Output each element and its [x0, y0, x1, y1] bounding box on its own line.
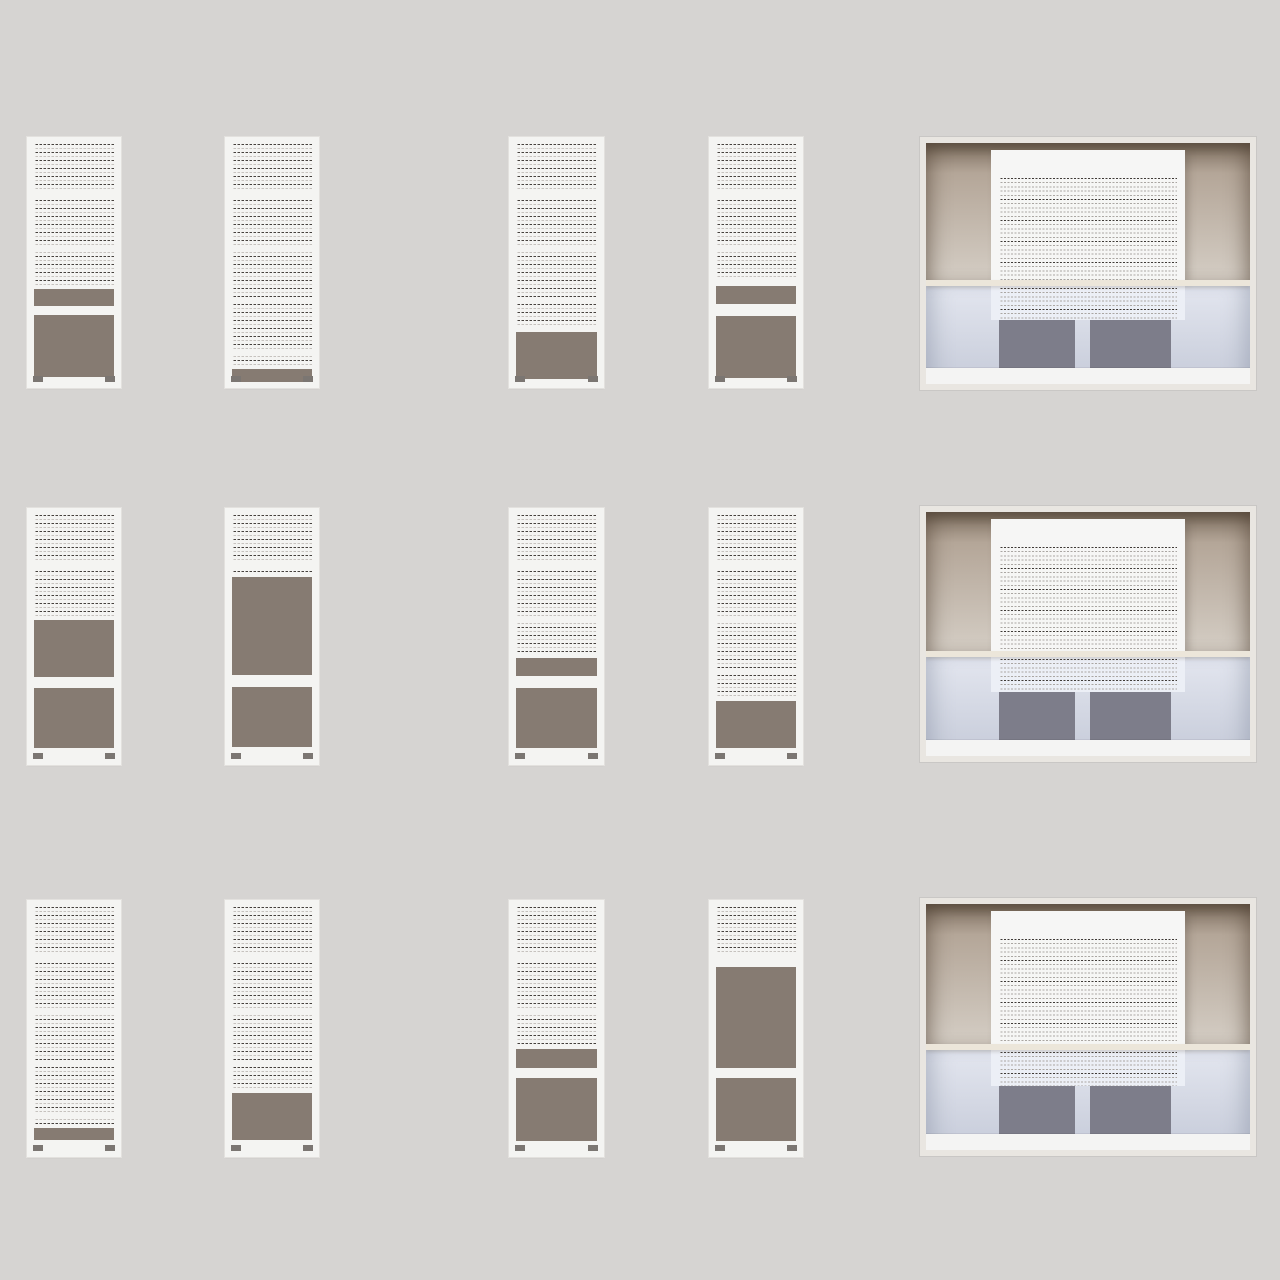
window-sill — [926, 368, 1250, 384]
image-bar — [516, 1049, 597, 1068]
footer-mark-left — [231, 753, 241, 759]
text-lines — [716, 144, 796, 280]
document-content — [232, 144, 312, 388]
document-content — [34, 515, 114, 765]
sheet-text-lines-tinted — [999, 659, 1177, 692]
text-lines — [716, 515, 796, 698]
window-sill — [926, 740, 1250, 756]
image-placeholder — [232, 687, 312, 747]
footer-mark-left — [715, 1145, 725, 1151]
image-placeholder — [716, 316, 796, 378]
image-placeholder — [516, 688, 597, 748]
document-content — [516, 515, 597, 765]
footer-mark-right — [588, 376, 598, 382]
poster-sheet-lower — [991, 657, 1185, 692]
sheet-text-lines — [999, 178, 1177, 280]
document-content — [716, 144, 796, 388]
sheet-text-lines-tinted — [999, 1052, 1177, 1086]
sheet-text-lines — [999, 547, 1177, 651]
footer-mark-right — [787, 376, 797, 382]
image-placeholder — [716, 1078, 796, 1141]
poster-sheet-lower — [991, 286, 1185, 320]
poster-left — [999, 692, 1075, 740]
storefront-interior — [926, 143, 1250, 384]
document-card-r1c1 — [27, 137, 121, 388]
footer-mark-left — [515, 1145, 525, 1151]
shelf-ledge — [926, 1044, 1250, 1050]
storefront-interior — [926, 904, 1250, 1150]
poster-right — [1090, 692, 1171, 740]
footer-mark-right — [588, 1145, 598, 1151]
document-content — [232, 907, 312, 1157]
text-lines — [716, 907, 796, 962]
poster-sheet-upper — [991, 150, 1185, 280]
image-placeholder — [232, 577, 312, 675]
footer-mark-right — [303, 753, 313, 759]
image-bar — [716, 286, 796, 304]
shelf-ledge — [926, 280, 1250, 286]
document-content — [34, 907, 114, 1157]
document-card-r2c1 — [27, 508, 121, 765]
text-lines — [232, 515, 312, 573]
storefront-card-r2 — [920, 506, 1256, 762]
image-placeholder — [232, 1093, 312, 1140]
footer-mark-right — [303, 376, 313, 382]
footer-mark-right — [588, 753, 598, 759]
footer-mark-left — [715, 376, 725, 382]
footer-mark-right — [787, 753, 797, 759]
image-bar — [516, 658, 597, 676]
image-placeholder — [34, 620, 114, 677]
footer-mark-right — [105, 376, 115, 382]
footer-mark-right — [303, 1145, 313, 1151]
footer-mark-left — [515, 376, 525, 382]
poster-left — [999, 1086, 1075, 1134]
document-card-r2c4 — [709, 508, 803, 765]
footer-mark-left — [231, 1145, 241, 1151]
text-lines — [232, 144, 312, 366]
image-placeholder — [516, 1078, 597, 1141]
footer-mark-left — [715, 753, 725, 759]
poster-right — [1090, 320, 1171, 368]
document-content — [716, 515, 796, 765]
spacer — [716, 304, 796, 316]
footer-mark-right — [787, 1145, 797, 1151]
poster-sheet-upper — [991, 911, 1185, 1044]
document-content — [716, 907, 796, 1157]
image-bar — [34, 1128, 114, 1140]
poster-right — [1090, 1086, 1171, 1134]
text-lines — [34, 515, 114, 616]
footer-mark-left — [515, 753, 525, 759]
storefront-card-r3 — [920, 898, 1256, 1156]
document-content — [516, 144, 597, 388]
footer-mark-right — [105, 753, 115, 759]
image-placeholder — [716, 967, 796, 1068]
image-placeholder — [34, 688, 114, 748]
image-placeholder — [34, 315, 114, 377]
document-card-r1c4 — [709, 137, 803, 388]
sheet-text-lines-tinted — [999, 288, 1177, 320]
image-placeholder — [716, 701, 796, 748]
footer-mark-left — [33, 1145, 43, 1151]
document-card-r3c3 — [509, 900, 604, 1157]
document-card-r2c2 — [225, 508, 319, 765]
spacer — [516, 1068, 597, 1078]
document-content — [516, 907, 597, 1157]
image-bar — [34, 289, 114, 306]
spacer — [34, 677, 114, 688]
poster-sheet-lower — [991, 1050, 1185, 1086]
text-lines — [516, 515, 597, 653]
footer-mark-left — [231, 376, 241, 382]
spacer — [716, 1068, 796, 1078]
spacer — [516, 676, 597, 688]
image-placeholder — [516, 332, 597, 379]
page-canvas — [0, 0, 1280, 1280]
text-lines — [34, 907, 114, 1126]
document-card-r3c4 — [709, 900, 803, 1157]
sheet-text-lines — [999, 939, 1177, 1044]
window-sill — [926, 1134, 1250, 1150]
document-content — [34, 144, 114, 388]
footer-mark-left — [33, 376, 43, 382]
document-card-r3c2 — [225, 900, 319, 1157]
text-lines — [516, 144, 597, 327]
image-bar — [232, 369, 312, 382]
document-card-r1c2 — [225, 137, 319, 388]
document-content — [232, 515, 312, 765]
text-lines — [516, 907, 597, 1045]
document-card-r1c3 — [509, 137, 604, 388]
text-lines — [232, 907, 312, 1088]
storefront-card-r1 — [920, 137, 1256, 390]
shelf-ledge — [926, 651, 1250, 657]
footer-mark-right — [105, 1145, 115, 1151]
spacer — [232, 675, 312, 687]
document-card-r3c1 — [27, 900, 121, 1157]
text-lines — [34, 144, 114, 285]
document-card-r2c3 — [509, 508, 604, 765]
poster-left — [999, 320, 1075, 368]
poster-sheet-upper — [991, 519, 1185, 651]
footer-mark-left — [33, 753, 43, 759]
spacer — [34, 306, 114, 315]
storefront-interior — [926, 512, 1250, 756]
